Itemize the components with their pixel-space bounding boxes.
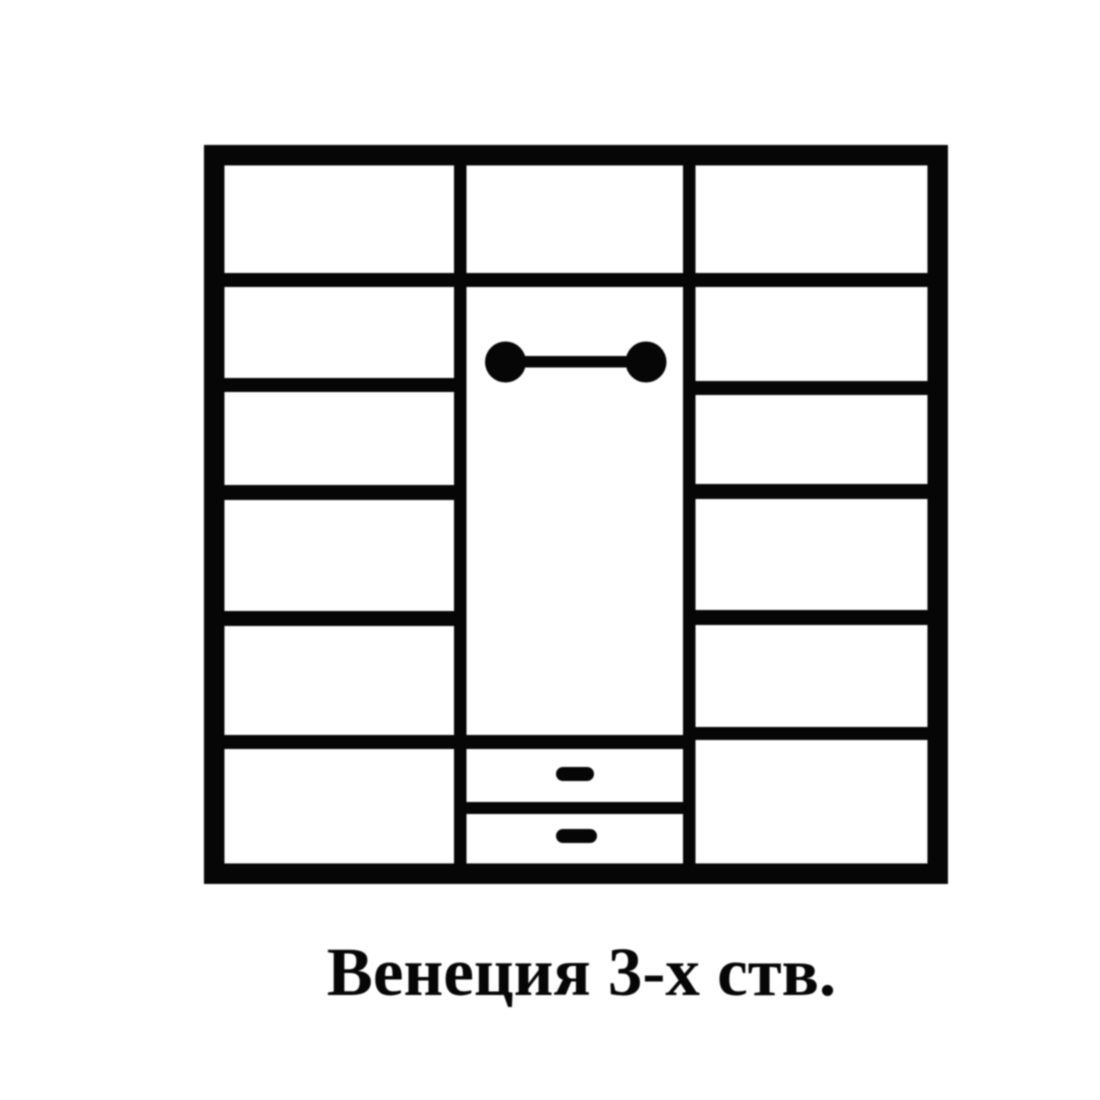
svg-text:Венеция 3-х ств.: Венеция 3-х ств. [327,934,836,1010]
